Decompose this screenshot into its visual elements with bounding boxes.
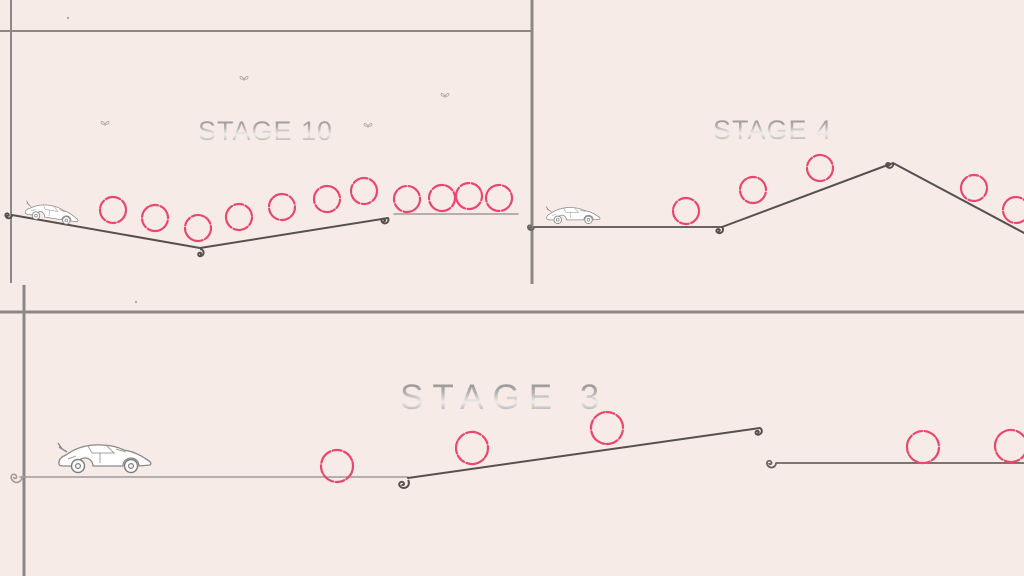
stage-select-screen: STAGE 10 STAGE 4 STAGE 3 bbox=[0, 0, 1024, 576]
stage-panel-10[interactable] bbox=[0, 0, 532, 312]
stage-panel-4[interactable] bbox=[532, 0, 1024, 312]
stage-panel-3[interactable] bbox=[0, 312, 1024, 576]
